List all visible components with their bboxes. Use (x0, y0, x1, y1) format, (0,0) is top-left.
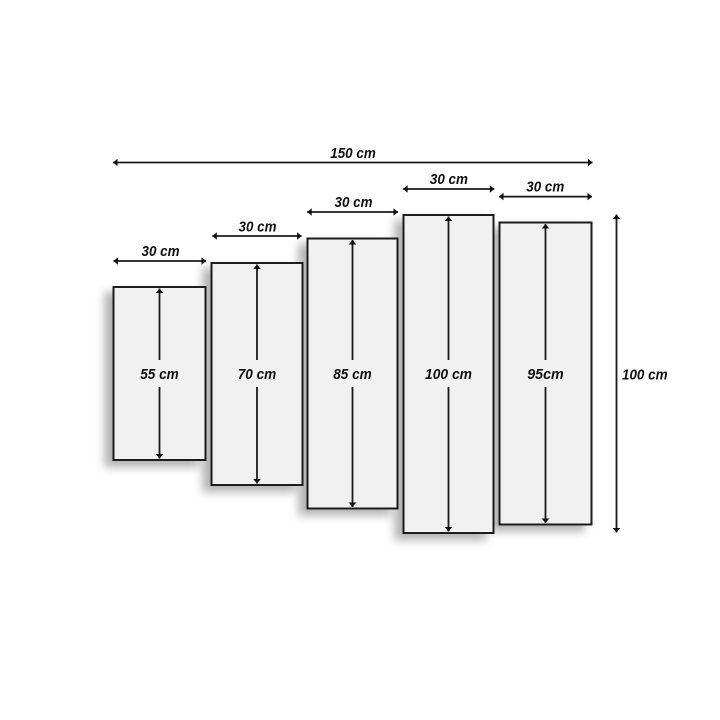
svg-text:30 cm: 30 cm (142, 243, 180, 260)
svg-text:30 cm: 30 cm (526, 179, 564, 196)
svg-text:85 cm: 85 cm (333, 366, 372, 383)
svg-text:30 cm: 30 cm (239, 219, 277, 236)
svg-text:150 cm: 150 cm (330, 145, 376, 162)
svg-text:100 cm: 100 cm (622, 367, 668, 384)
svg-text:30 cm: 30 cm (430, 171, 468, 188)
svg-text:70 cm: 70 cm (238, 366, 277, 383)
svg-text:95cm: 95cm (527, 366, 564, 383)
svg-text:100 cm: 100 cm (425, 366, 472, 383)
svg-text:55 cm: 55 cm (140, 366, 179, 383)
svg-text:30 cm: 30 cm (335, 194, 373, 211)
